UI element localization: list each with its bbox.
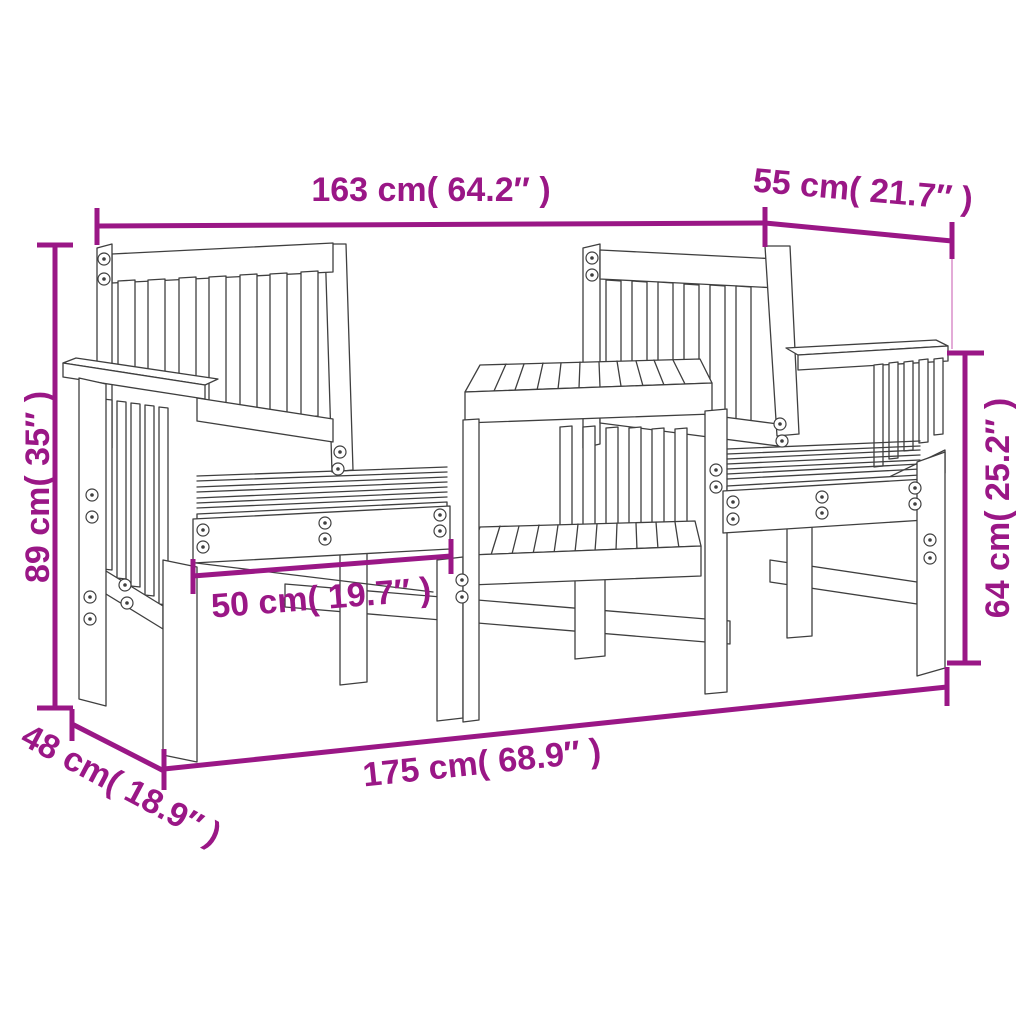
- dim-line: [765, 223, 952, 241]
- table-lower-shelf: [470, 521, 701, 585]
- dim-overall-width-top: 163 cm( 64.2″ ): [97, 171, 765, 247]
- dim-label-seat-width-center: 50 cm( 19.7″ ): [210, 570, 433, 625]
- bench-dimension-diagram: 163 cm( 64.2″ ) 55 cm( 21.7″ ) 89 cm( 35…: [0, 0, 1024, 1024]
- bench-line-art: [63, 243, 948, 762]
- dim-label-overall-width-top: 163 cm( 64.2″ ): [311, 171, 550, 209]
- dim-armrest-height-right: 64 cm( 25.2″ ): [947, 353, 1017, 663]
- dim-label-depth-top-right: 55 cm( 21.7″ ): [752, 162, 975, 219]
- dim-label-overall-height-left: 89 cm( 35″ ): [19, 391, 57, 583]
- dim-line: [97, 223, 765, 226]
- dim-overall-width-bottom: 175 cm( 68.9″ ): [164, 667, 947, 794]
- dim-label-armrest-height-right: 64 cm( 25.2″ ): [979, 398, 1017, 618]
- dim-overall-height-left: 89 cm( 35″ ): [19, 245, 73, 708]
- dim-label-overall-width-bottom: 175 cm( 68.9″ ): [361, 732, 603, 795]
- table-back-slats: [560, 426, 687, 532]
- table-top: [465, 359, 712, 423]
- diagram-canvas: 163 cm( 64.2″ ) 55 cm( 21.7″ ) 89 cm( 35…: [0, 0, 1024, 1024]
